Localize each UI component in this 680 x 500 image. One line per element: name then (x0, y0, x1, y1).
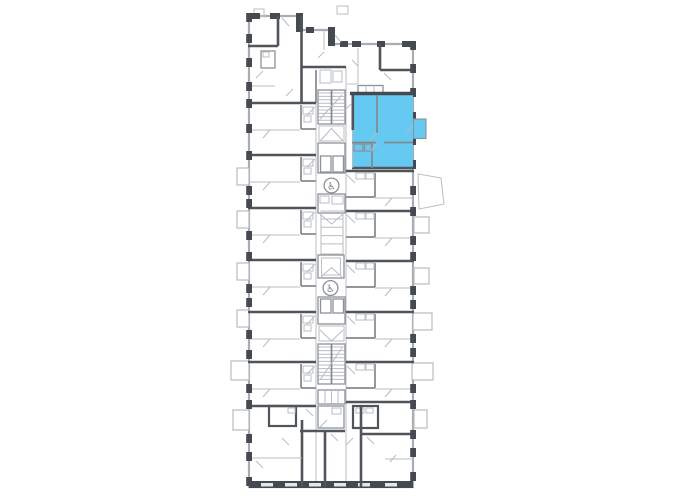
window-pier (246, 452, 252, 461)
window-pier (246, 186, 252, 195)
window-pier (410, 252, 416, 261)
window-pier (246, 124, 252, 133)
r (385, 483, 397, 487)
window-pier (410, 400, 416, 409)
balcony-left (237, 310, 249, 327)
window-pier (410, 236, 416, 245)
window-pier (246, 82, 252, 91)
window-pier (246, 99, 252, 108)
accessibility-icon: ♿ (327, 182, 336, 193)
balcony-left (233, 410, 249, 430)
window-pier (410, 41, 416, 50)
window-pier (246, 298, 252, 307)
r (402, 41, 411, 47)
r (340, 41, 348, 47)
r (352, 41, 361, 47)
balcony-left (237, 168, 249, 185)
accessibility-icon: ♿ (326, 284, 335, 295)
r (328, 27, 335, 46)
door-swing (335, 35, 341, 42)
floor-plan-page: ♿♿ (0, 0, 680, 500)
window-pier (246, 58, 252, 67)
balcony-left (237, 211, 249, 228)
roof-shaft (337, 6, 348, 14)
r (261, 483, 273, 487)
balcony-left (237, 263, 249, 280)
window-pier (410, 64, 416, 73)
window-pier (246, 284, 252, 293)
window-pier (246, 231, 252, 240)
window-pier (246, 434, 252, 443)
r (334, 483, 346, 487)
r (285, 483, 297, 487)
window-pier (246, 350, 252, 359)
window-pier (410, 472, 416, 481)
window-pier (246, 384, 252, 393)
window-pier (246, 330, 252, 339)
window-pier (410, 334, 416, 343)
window-pier (246, 13, 252, 22)
window-pier (410, 448, 416, 457)
r (306, 27, 314, 33)
window-pier (410, 348, 416, 357)
balcony-right (414, 268, 429, 284)
r (252, 13, 260, 19)
r (309, 483, 321, 487)
window-pier (410, 384, 416, 393)
balcony-right (412, 363, 433, 380)
window-pier (246, 477, 252, 486)
tilted-balcony (418, 174, 444, 209)
balcony-left (231, 361, 249, 380)
floor-plan: ♿♿ (0, 0, 680, 500)
window-pier (246, 400, 252, 409)
window-pier (410, 300, 416, 309)
apartment-balcony[interactable] (414, 119, 427, 139)
window-pier (246, 151, 252, 160)
window-pier (246, 199, 252, 208)
balcony-right (413, 313, 432, 330)
balcony-right (414, 410, 427, 428)
building-outline (249, 16, 413, 487)
window-pier (410, 286, 416, 295)
apartment-fill[interactable] (352, 95, 413, 168)
window-pier (410, 430, 416, 439)
window-pier (410, 186, 416, 195)
window-pier (246, 252, 252, 261)
window-pier (246, 34, 252, 43)
balcony-right (414, 217, 429, 233)
window-pier (410, 207, 416, 216)
